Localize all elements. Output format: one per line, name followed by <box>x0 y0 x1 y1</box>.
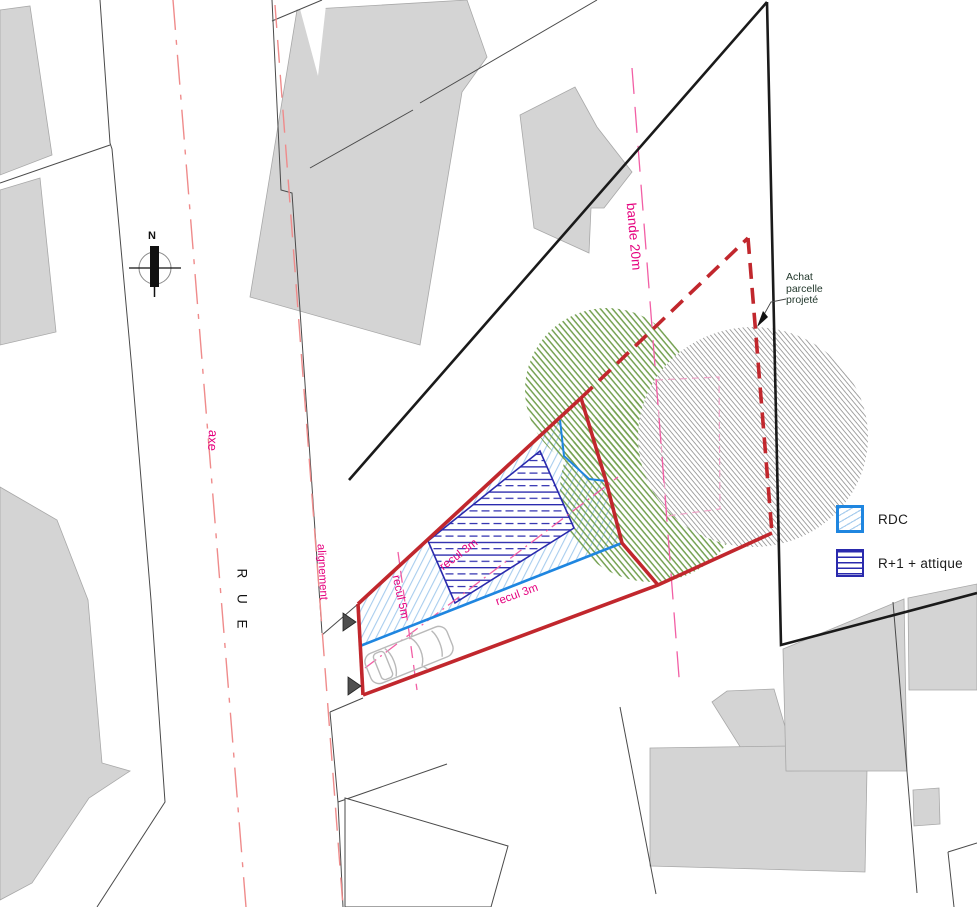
achat-line-3: projeté <box>786 295 823 307</box>
building-top-right-chunk <box>520 87 632 253</box>
building-top-center <box>250 0 487 345</box>
access-marker-south <box>348 677 361 695</box>
building-left-lower <box>0 487 130 900</box>
building-outline-bottom-center <box>345 798 508 907</box>
legend-row-r1-attique: R+1 + attique <box>836 549 976 577</box>
leader-arrowhead <box>757 311 768 327</box>
north-label: N <box>148 230 156 242</box>
building-bottom-center-upper <box>712 689 791 753</box>
car-hood-line <box>432 630 445 657</box>
building-bottom-right-a <box>783 599 907 771</box>
rue-label: R U E <box>235 560 250 644</box>
building-bottom-right-small <box>913 788 940 826</box>
building-top-left-b <box>0 178 56 345</box>
site-plan: N R U E axe alignement bande 20m recul 5… <box>0 0 977 907</box>
annotation-leader <box>757 299 786 327</box>
building-bottom-right-b <box>908 584 977 690</box>
legend-label-rdc: RDC <box>878 512 908 527</box>
north-arrow <box>129 246 181 297</box>
north-arrow-bar <box>150 246 159 287</box>
frontage-link-south <box>330 698 363 712</box>
trees <box>525 308 868 582</box>
building-top-left-a <box>0 6 52 175</box>
legend-label-r1-attique: R+1 + attique <box>878 556 963 571</box>
parcel-line-corner-a <box>948 843 977 852</box>
parcel-line-corner-b <box>948 852 954 907</box>
legend-swatch-rdc <box>836 505 864 533</box>
access-marker-north <box>343 613 356 631</box>
car-windshield <box>411 636 426 666</box>
legend-row-rdc: RDC <box>836 505 976 533</box>
tree-gray-hatch <box>638 327 868 547</box>
legend: RDC R+1 + attique <box>836 505 976 593</box>
site-plan-drawing <box>0 0 977 907</box>
achat-line-1: Achat <box>786 272 823 284</box>
legend-swatch-r1-attique <box>836 549 864 577</box>
axe-label: axe <box>205 423 222 458</box>
achat-annotation: Achat parcelle projeté <box>786 272 823 307</box>
parcel-line-southeast <box>338 764 447 802</box>
